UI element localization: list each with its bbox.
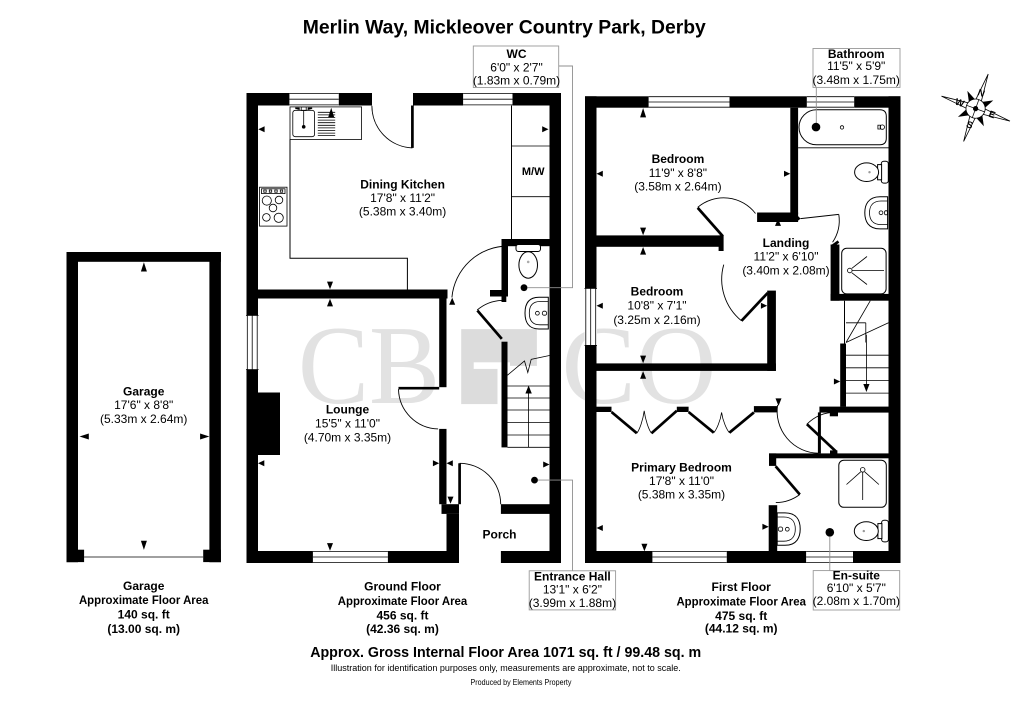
svg-text:Ground Floor: Ground Floor bbox=[364, 580, 441, 594]
svg-text:(3.58m x 2.64m): (3.58m x 2.64m) bbox=[634, 179, 721, 193]
svg-text:Bedroom: Bedroom bbox=[631, 285, 684, 299]
svg-text:140 sq. ft: 140 sq. ft bbox=[118, 608, 170, 622]
svg-text:6'10" x 5'7": 6'10" x 5'7" bbox=[827, 581, 886, 595]
svg-text:(5.33m x 2.64m): (5.33m x 2.64m) bbox=[100, 412, 187, 426]
svg-text:11'5" x 5'9": 11'5" x 5'9" bbox=[827, 59, 885, 73]
svg-text:Garage: Garage bbox=[123, 579, 165, 593]
svg-text:Approximate Floor Area: Approximate Floor Area bbox=[79, 593, 209, 607]
svg-text:Illustration for identificatio: Illustration for identification purposes… bbox=[331, 663, 681, 673]
svg-text:11'2" x 6'10": 11'2" x 6'10" bbox=[754, 250, 819, 264]
svg-text:Landing: Landing bbox=[763, 236, 810, 250]
svg-text:Lounge: Lounge bbox=[326, 402, 370, 416]
svg-text:(5.38m x 3.35m): (5.38m x 3.35m) bbox=[638, 488, 725, 502]
svg-text:(42.36 sq. m): (42.36 sq. m) bbox=[366, 622, 439, 636]
svg-text:(4.70m x 3.35m): (4.70m x 3.35m) bbox=[304, 431, 391, 445]
svg-text:Entrance Hall: Entrance Hall bbox=[534, 569, 611, 583]
svg-text:17'8" x 11'0": 17'8" x 11'0" bbox=[649, 474, 714, 488]
svg-text:456 sq. ft: 456 sq. ft bbox=[376, 609, 428, 623]
svg-text:(3.99m x 1.88m): (3.99m x 1.88m) bbox=[529, 596, 616, 610]
svg-text:Approximate Floor Area: Approximate Floor Area bbox=[676, 595, 806, 609]
svg-text:Dining Kitchen: Dining Kitchen bbox=[360, 178, 445, 192]
svg-text:Bedroom: Bedroom bbox=[652, 152, 705, 166]
svg-text:N: N bbox=[976, 87, 986, 100]
svg-text:Porch: Porch bbox=[482, 528, 516, 542]
svg-text:S: S bbox=[965, 119, 975, 132]
svg-text:Merlin Way, Mickleover Country: Merlin Way, Mickleover Country Park, Der… bbox=[303, 18, 706, 39]
svg-text:W: W bbox=[953, 97, 965, 110]
svg-text:Approx. Gross Internal Floor A: Approx. Gross Internal Floor Area 1071 s… bbox=[310, 645, 701, 661]
svg-text:M/W: M/W bbox=[522, 166, 545, 178]
svg-text:(44.12 sq. m): (44.12 sq. m) bbox=[705, 622, 778, 636]
svg-text:11'9" x 8'8": 11'9" x 8'8" bbox=[649, 166, 707, 180]
svg-text:17'8" x 11'2": 17'8" x 11'2" bbox=[370, 191, 435, 205]
svg-text:(3.40m x 2.08m): (3.40m x 2.08m) bbox=[742, 263, 829, 277]
svg-text:Garage: Garage bbox=[123, 385, 165, 399]
svg-text:13'1" x 6'2": 13'1" x 6'2" bbox=[543, 583, 602, 597]
svg-text:First Floor: First Floor bbox=[712, 580, 772, 594]
svg-text:(2.08m x 1.70m): (2.08m x 1.70m) bbox=[813, 594, 900, 608]
svg-text:WC: WC bbox=[507, 47, 527, 61]
svg-text:17'6" x 8'8": 17'6" x 8'8" bbox=[114, 398, 173, 412]
svg-text:15'5" x 11'0": 15'5" x 11'0" bbox=[315, 417, 380, 431]
svg-text:(3.48m x 1.75m): (3.48m x 1.75m) bbox=[813, 73, 900, 87]
svg-text:Approximate Floor Area: Approximate Floor Area bbox=[338, 594, 468, 608]
svg-text:(13.00 sq. m): (13.00 sq. m) bbox=[107, 622, 180, 636]
svg-text:(1.83m x 0.79m): (1.83m x 0.79m) bbox=[473, 73, 560, 87]
svg-text:Primary Bedroom: Primary Bedroom bbox=[631, 461, 732, 475]
svg-text:(5.38m x 3.40m): (5.38m x 3.40m) bbox=[359, 205, 446, 219]
svg-text:(3.25m x 2.16m): (3.25m x 2.16m) bbox=[613, 313, 700, 327]
svg-text:10'8" x 7'1": 10'8" x 7'1" bbox=[627, 299, 686, 313]
svg-text:Produced by Elements Property: Produced by Elements Property bbox=[471, 678, 573, 687]
